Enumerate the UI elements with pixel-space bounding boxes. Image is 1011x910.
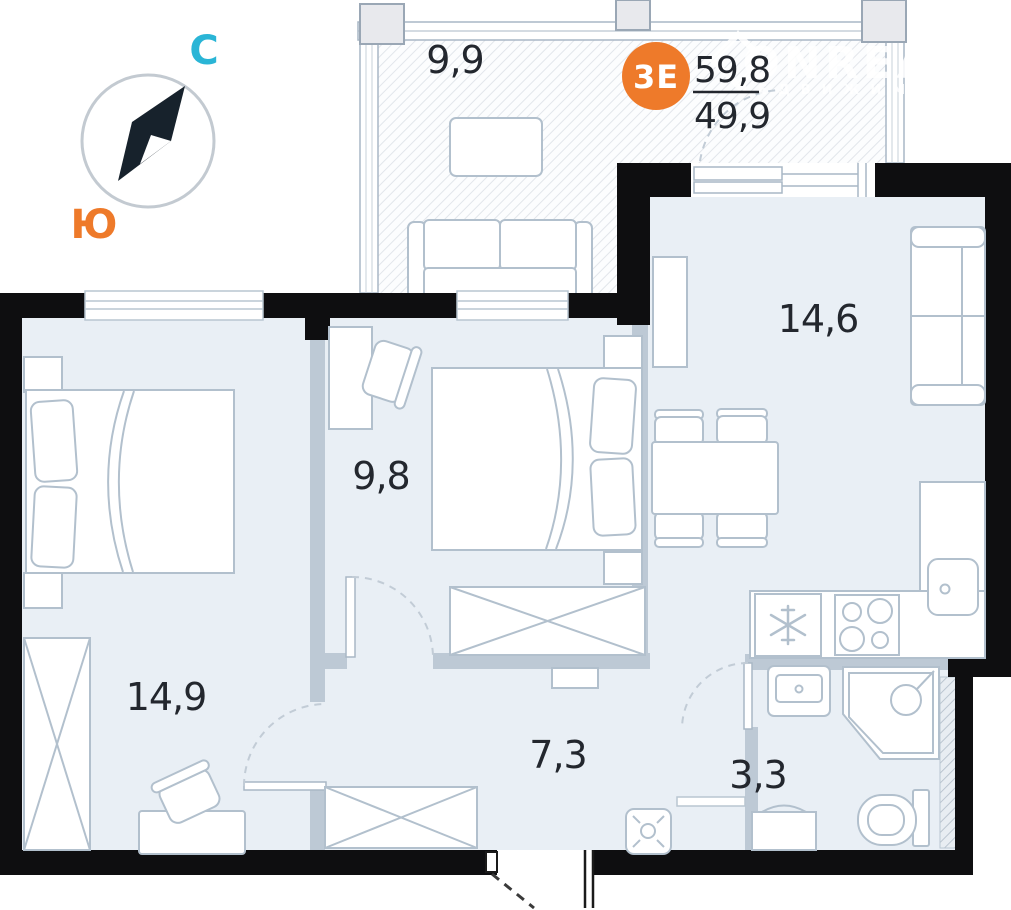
wardrobe (325, 787, 477, 848)
balcony-sofa (408, 220, 592, 298)
door-leaf (346, 577, 355, 657)
compass-south-label: Ю (71, 202, 118, 248)
bathroom-hatched-wall (940, 677, 956, 848)
entrance-door (486, 850, 593, 908)
chair (717, 538, 767, 547)
compass: С Ю (71, 28, 219, 248)
pillow (31, 486, 77, 568)
chair (655, 538, 703, 547)
compass-north-label: С (189, 28, 218, 74)
pillow (590, 458, 636, 536)
door-leaf (244, 782, 326, 790)
room-area-label: 3,3 (729, 753, 786, 797)
balcony-door-block (691, 163, 875, 197)
washbasin (768, 666, 830, 716)
pillow (30, 400, 77, 483)
hall-niche-wall (677, 797, 745, 806)
watermark-brand: ONREALT (743, 38, 994, 89)
floor-plan: ONREALT НЕДВИЖИМОСТЬ (0, 0, 1011, 910)
nightstand (604, 552, 642, 584)
room-area-label: 14,6 (778, 297, 859, 341)
sofa (911, 227, 985, 405)
wardrobe (24, 638, 90, 850)
dining-table (652, 442, 778, 514)
bedroom-left-window (85, 291, 263, 320)
floor-plan-svg: ONREALT НЕДВИЖИМОСТЬ (0, 0, 1011, 910)
door-leaf (744, 663, 752, 729)
room-area-label: 7,3 (529, 733, 586, 777)
nightstand (604, 336, 642, 368)
entrance-mat (626, 809, 671, 854)
cabinet (653, 257, 687, 367)
watermark-tagline: НЕДВИЖИМОСТЬ (736, 83, 999, 98)
nightstand (24, 573, 62, 608)
column (616, 0, 650, 30)
stove-icon (835, 595, 899, 655)
toilet (858, 790, 929, 846)
chair (655, 512, 703, 540)
pillow (589, 378, 636, 455)
chair (655, 417, 703, 445)
bedroom-middle-window (457, 291, 568, 320)
column (862, 0, 906, 42)
wardrobe (450, 587, 645, 655)
column (360, 4, 404, 44)
washing-machine (752, 806, 816, 851)
living-area: 49,9 (694, 96, 770, 137)
fridge-icon (755, 594, 821, 656)
coffee-table (450, 118, 542, 176)
room-area-label: 14,9 (126, 675, 207, 719)
chair (717, 416, 767, 444)
kitchen-sink (928, 559, 978, 615)
balcony-glazing-left (360, 40, 378, 293)
total-area: 59,8 (694, 50, 770, 91)
room-area-label: 9,9 (426, 38, 483, 82)
chair (717, 512, 767, 540)
room-area-label: 9,8 (352, 454, 409, 498)
nightstand (24, 357, 62, 392)
unit-label: 3Е (633, 58, 679, 96)
shelf (552, 668, 598, 688)
